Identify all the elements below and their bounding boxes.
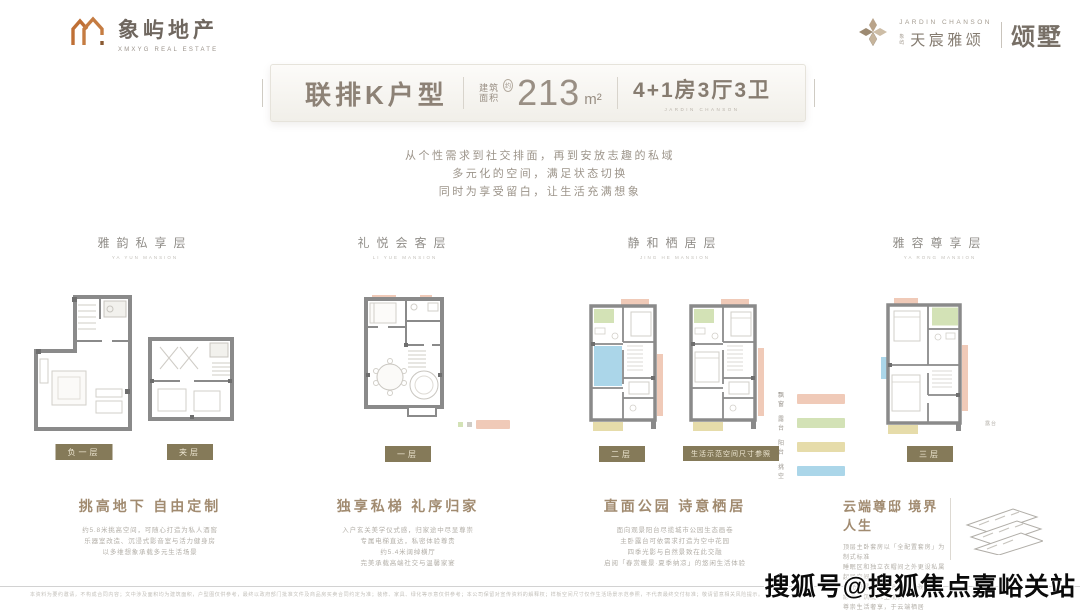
petal-flower-icon xyxy=(856,16,890,53)
floorplan-second-floor-demo xyxy=(685,298,777,438)
feature-body-line: 四季光影与自然景致在此交融 xyxy=(535,547,815,558)
area-label-1: 建筑 xyxy=(479,83,499,93)
floor-title-4-text: 雅容尊享层 xyxy=(835,234,1045,251)
plan-color-legend: 飘窗 露台 阳台 挑空 xyxy=(778,390,845,486)
legend-label-balcony: 阳台 xyxy=(778,438,792,456)
project-logo: JARDIN CHANSON 象屿 天宸雅颂 颂墅 xyxy=(856,16,1063,53)
layout-subtext: JARDIN CHANSON xyxy=(633,107,771,112)
watermark-text: 搜狐号@搜狐焦点嘉峪关站 xyxy=(765,567,1076,603)
title-right-tick xyxy=(814,79,815,107)
legend-swatch-terrace xyxy=(797,418,845,428)
area-approx: 约 xyxy=(503,79,513,92)
floor-title-4: 雅容尊享层 YA RONG MANSION xyxy=(835,234,1045,260)
project-product-name: 颂墅 xyxy=(1011,17,1063,52)
badge-basement: 负一层 xyxy=(56,444,113,460)
legend-label-void: 挑空 xyxy=(778,462,792,480)
feature-body-line: 乐器室改造、沉浸式影音室与活力健身房 xyxy=(15,536,285,547)
feature-body-line: 完美承载高端社交与温馨家宴 xyxy=(278,558,538,569)
legend-swatch-bay-window xyxy=(797,394,845,404)
floorplan-third-floor xyxy=(880,295,980,445)
floorplan-basement xyxy=(30,293,138,438)
unit-name: 联排K户型 xyxy=(305,75,448,112)
legend-row: 露台 xyxy=(778,414,845,432)
unit-area: 建筑 面积 约 213 m² xyxy=(479,72,602,114)
legend-label-terrace: 露台 xyxy=(778,414,792,432)
house-icon xyxy=(70,15,110,52)
floor-title-1-text: 雅韵私享层 xyxy=(40,234,250,251)
building-isometric-diagram xyxy=(963,505,1043,560)
feature-body-line: 约5.8米挑高空间，可随心打造为私人酒窖 xyxy=(15,525,285,536)
tagline-line-2: 多元化的空间，满足状态切换 xyxy=(0,165,1080,183)
first-floor-mini-legend xyxy=(458,420,510,429)
area-value: 213 xyxy=(517,72,580,114)
developer-tagline: XMXYG REAL ESTATE xyxy=(118,47,218,53)
badge-mezzanine: 夹层 xyxy=(167,444,213,460)
floorplan-second-floor xyxy=(585,298,668,438)
title-left-tick xyxy=(262,79,263,107)
floor-title-2-sub: LI YUE MANSION xyxy=(300,255,510,260)
legend-row: 阳台 xyxy=(778,438,845,456)
floor-title-1-sub: YA YUN MANSION xyxy=(40,255,250,260)
feature-body-line: 入户玄关美学仪式感，归家途中尽显尊崇 xyxy=(278,525,538,536)
feature-heading-2: 独享私梯 礼序归家 xyxy=(278,496,538,516)
feature-body-line: 主卧露台可依需求打造为空中花园 xyxy=(535,536,815,547)
feature-block-3: 直面公园 诗意栖居 面向观景阳台尽揽城市公园生态画卷 主卧露台可依需求打造为空中… xyxy=(535,496,815,569)
unit-layout: 4+1房3厅3卫 JARDIN CHANSON xyxy=(633,74,771,112)
legend-row: 飘窗 xyxy=(778,390,845,408)
project-brand-prefix: 象屿 xyxy=(899,34,906,46)
feature-body-line: 尊崇生活奢享，于云端栖居 xyxy=(843,603,948,613)
floorplan-first-floor xyxy=(358,293,458,423)
unit-title-bar: 联排K户型 建筑 面积 约 213 m² 4+1房3厅3卫 JARDIN CHA… xyxy=(270,64,806,122)
feature-heading-4: 云端尊邸 境界人生 xyxy=(843,496,948,534)
project-brand-cn: 天宸雅颂 xyxy=(910,29,984,50)
area-label-2: 面积 xyxy=(479,93,499,103)
tagline-line-1: 从个性需求到社交排面，再到安放志趣的私域 xyxy=(0,147,1080,165)
logo-divider xyxy=(1001,22,1002,48)
floor-title-2: 礼悦会客层 LI YUE MANSION xyxy=(300,234,510,260)
title-separator xyxy=(463,77,464,109)
feature-heading-1: 挑高地下 自由定制 xyxy=(15,496,285,516)
legend-row: 挑空 xyxy=(778,462,845,480)
mini-swatch-pink-bar xyxy=(476,420,510,429)
legend-label-bay-window: 飘窗 xyxy=(778,390,792,408)
badge-demo-note: 生活示范空间尺寸参照 xyxy=(683,446,779,461)
layout-text: 4+1房3厅3卫 xyxy=(633,74,771,104)
feature-block-1: 挑高地下 自由定制 约5.8米挑高空间，可随心打造为私人酒窖 乐器室改造、沉浸式… xyxy=(15,496,285,558)
area-unit: m² xyxy=(584,91,602,114)
developer-logo: 象屿地产 XMXYG REAL ESTATE xyxy=(70,14,218,53)
mini-swatch-green xyxy=(458,422,463,427)
tagline-line-3: 同时为享受留白，让生活充满想象 xyxy=(0,183,1080,201)
floor-title-3-sub: JING HE MANSION xyxy=(570,255,780,260)
badge-second-floor: 二层 xyxy=(599,446,645,462)
floorplan-poster: { "header": { "left_logo": { "name": "象屿… xyxy=(0,0,1080,608)
floorplan-mezzanine xyxy=(146,333,236,430)
developer-name: 象屿地产 xyxy=(118,14,218,44)
tagline: 从个性需求到社交排面，再到安放志趣的私域 多元化的空间，满足状态切换 同时为享受… xyxy=(0,147,1080,201)
feature-heading-3: 直面公园 诗意栖居 xyxy=(535,496,815,516)
floor-title-3-text: 静和栖居层 xyxy=(570,234,780,251)
feature-body-line: 面向观景阳台尽揽城市公园生态画卷 xyxy=(535,525,815,536)
project-brand-en: JARDIN CHANSON xyxy=(899,19,992,26)
feature-block-2: 独享私梯 礼序归家 入户玄关美学仪式感，归家途中尽显尊崇 专属电梯直达，私密体验… xyxy=(278,496,538,569)
mini-swatch-gray xyxy=(467,422,472,427)
badge-third-floor: 三层 xyxy=(907,446,953,462)
feature-body-line: 约5.4米阔绰横厅 xyxy=(278,547,538,558)
legend-swatch-balcony xyxy=(797,442,845,452)
floor-title-1: 雅韵私享层 YA YUN MANSION xyxy=(40,234,250,260)
terrace-label: 露台 xyxy=(985,420,997,427)
title-separator xyxy=(617,77,618,109)
floor-title-4-sub: YA RONG MANSION xyxy=(835,255,1045,260)
badge-first-floor: 一层 xyxy=(385,446,431,462)
feature-body-line: 专属电梯直达，私密体验尊贵 xyxy=(278,536,538,547)
feature-body-line: 顶层主卧套房以「全配置套房」为制式标准 xyxy=(843,543,948,563)
floor-title-2-text: 礼悦会客层 xyxy=(300,234,510,251)
feature-body-line: 以多维想象承载多元生活场景 xyxy=(15,547,285,558)
floor-title-3: 静和栖居层 JING HE MANSION xyxy=(570,234,780,260)
feature-divider xyxy=(950,498,951,560)
legend-swatch-void xyxy=(797,466,845,476)
